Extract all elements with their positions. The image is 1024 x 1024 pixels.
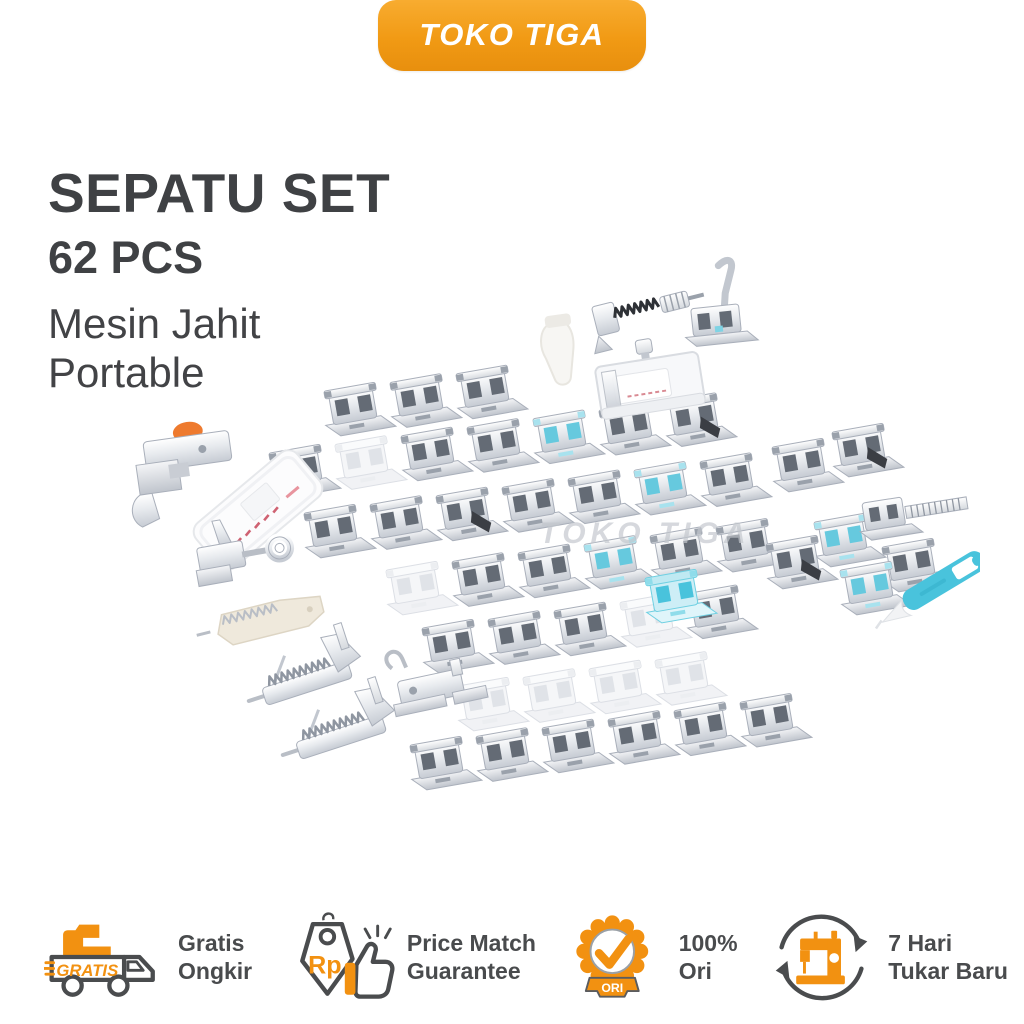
- feature-original: ORI 100% Ori: [565, 908, 738, 1006]
- presser-foot: [604, 708, 680, 766]
- ruler-foot: [856, 487, 971, 542]
- presser-foot: [529, 408, 605, 466]
- feature-label: Price Match Guarantee: [407, 929, 536, 985]
- presser-foot: [736, 691, 812, 749]
- presser-foot: [397, 425, 473, 483]
- product-card: TOKO TIGA SEPATU SET 62 PCS Mesin Jahit …: [0, 0, 1024, 1024]
- feature-price-match: Rp Price Match Guarantee: [281, 908, 536, 1006]
- presser-foot: [585, 658, 661, 716]
- brand-badge: TOKO TIGA: [378, 0, 646, 71]
- presser-foot: [768, 436, 844, 494]
- cream-spring-foot: [193, 591, 326, 653]
- white-plastic-foot: [537, 313, 579, 387]
- price-tag-thumbs-up-icon: Rp: [281, 908, 397, 1006]
- buttonhole-attachment: [591, 331, 705, 419]
- feature-label: Gratis Ongkir: [178, 929, 252, 985]
- presser-foot: [432, 485, 508, 543]
- presser-foot: [484, 608, 560, 666]
- page-title: SEPATU SET: [48, 166, 390, 221]
- presser-foot: [386, 371, 462, 429]
- presser-foot: [448, 550, 524, 608]
- presser-foot: [382, 559, 458, 617]
- presser-foot: [320, 380, 396, 438]
- presser-foot: [463, 416, 539, 474]
- presser-foot: [538, 717, 614, 775]
- presser-foot: [472, 725, 548, 783]
- original-seal-icon: ORI: [565, 908, 669, 1006]
- presser-foot: [696, 450, 772, 508]
- product-photo-image: TOKO TIGA: [45, 255, 980, 820]
- photo-watermark: TOKO TIGA: [539, 517, 750, 550]
- lever-foot: [678, 258, 758, 347]
- presser-foot: [828, 421, 904, 479]
- feature-label: 100% Ori: [679, 929, 738, 985]
- free-shipping-truck-icon: GRATIS: [44, 908, 168, 1006]
- presser-foot: [366, 493, 442, 551]
- feature-exchange: 7 Hari Tukar Baru: [766, 908, 1008, 1006]
- sewing-machine-exchange-icon: [766, 908, 878, 1006]
- presser-foot: [670, 700, 746, 758]
- presser-foot: [519, 666, 595, 724]
- presser-foot: [514, 542, 590, 600]
- presser-foot: [331, 433, 407, 491]
- feature-badges-row: GRATIS Gratis Ongkir Rp Price Match: [44, 905, 1008, 1009]
- seal-ori-text: ORI: [601, 981, 623, 995]
- feature-free-shipping: GRATIS Gratis Ongkir: [44, 908, 252, 1006]
- tag-rp-text: Rp: [308, 951, 342, 979]
- feature-label: 7 Hari Tukar Baru: [888, 929, 1008, 985]
- brand-name: TOKO TIGA: [419, 17, 604, 55]
- presser-foot: [406, 734, 482, 792]
- presser-foot: [630, 459, 706, 517]
- presser-foot: [452, 363, 528, 421]
- truck-gratis-text: GRATIS: [56, 961, 118, 980]
- presser-foot: [550, 600, 626, 658]
- presser-foot: [651, 649, 727, 707]
- presser-foot: [300, 502, 376, 560]
- presser-foot: [453, 675, 529, 733]
